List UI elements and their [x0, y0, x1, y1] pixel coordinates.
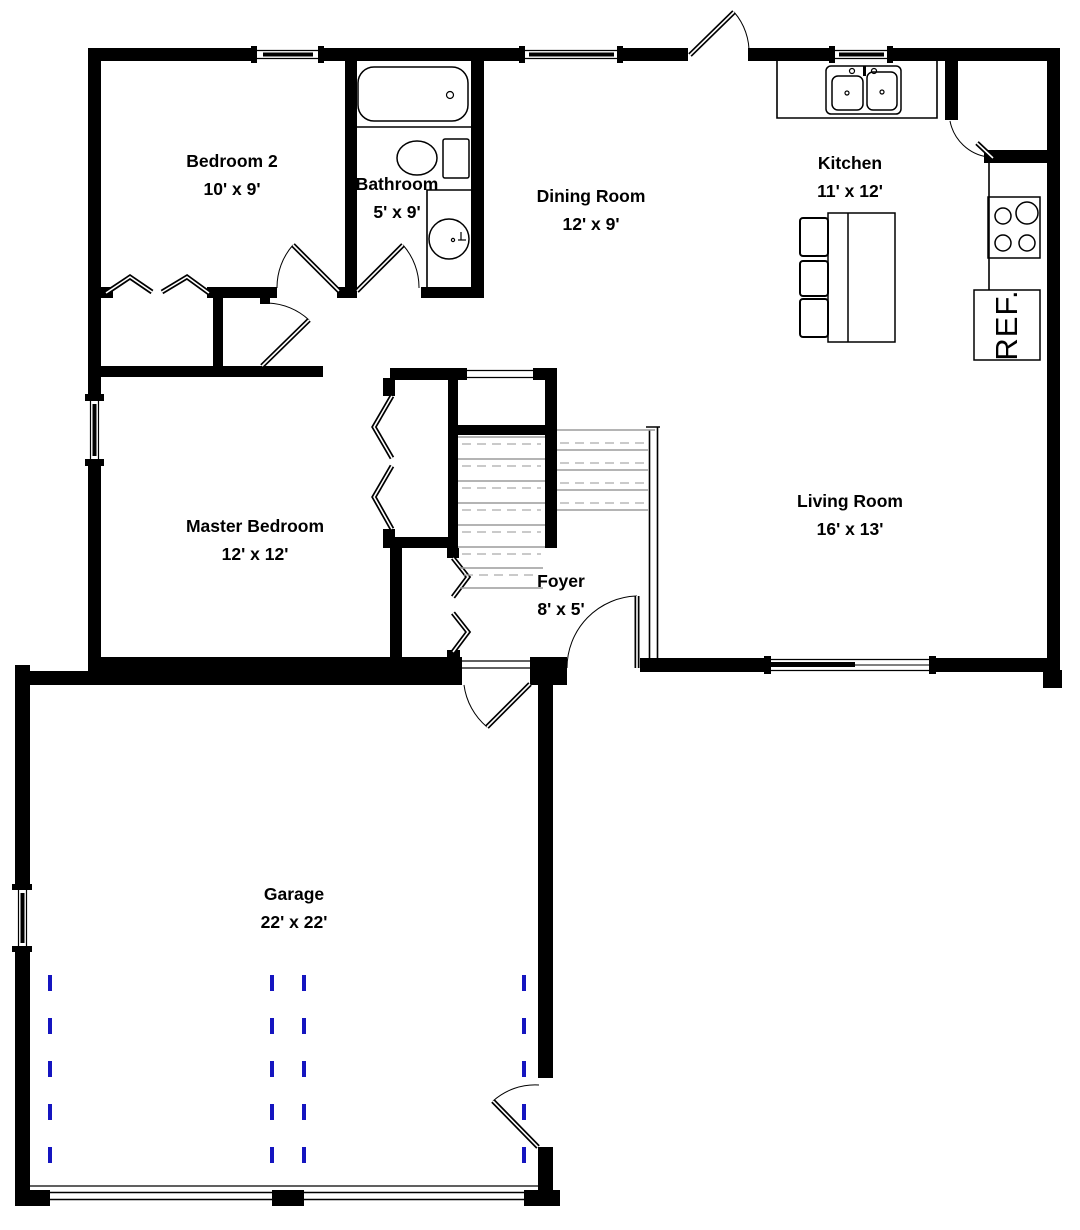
garage-side-door	[493, 1085, 539, 1147]
room-dims: 10' x 9'	[186, 175, 277, 203]
floor-plan: Bedroom 2 10' x 9' Bathroom 5' x 9' Dini…	[0, 0, 1080, 1230]
refrigerator-label: REF.	[989, 289, 1025, 360]
room-label-bathroom: Bathroom 5' x 9'	[356, 170, 439, 226]
bathroom-door	[357, 245, 419, 291]
room-name: Bathroom	[356, 170, 439, 198]
range-stove	[988, 197, 1040, 258]
room-dims: 5' x 9'	[356, 198, 439, 226]
garage-window	[19, 890, 27, 946]
master-closet-doors	[374, 396, 392, 529]
room-label-garage: Garage 22' x 22'	[261, 880, 328, 936]
room-name: Foyer	[537, 567, 585, 595]
back-door	[690, 12, 749, 55]
kitchen-sink	[826, 66, 901, 114]
foyer-closet-doors	[453, 558, 468, 652]
bedroom2-closet-doors	[106, 277, 209, 293]
master-bedroom-door	[262, 303, 309, 366]
room-name: Living Room	[797, 487, 903, 515]
foyer-east-wall	[646, 427, 660, 667]
room-name: Bedroom 2	[186, 147, 277, 175]
closet-sliding-door	[467, 371, 533, 378]
garage-entry-threshold	[462, 661, 530, 668]
room-label-living: Living Room 16' x 13'	[797, 487, 903, 543]
bedroom2-door	[277, 245, 339, 291]
bedroom2-window	[257, 51, 318, 59]
thin-lines	[30, 61, 989, 1200]
closet-bifold-doors	[106, 277, 468, 652]
bathtub	[358, 67, 468, 121]
island-stools	[800, 218, 828, 337]
room-dims: 8' x 5'	[537, 595, 585, 623]
basement-staircase	[557, 430, 655, 510]
room-dims: 12' x 9'	[537, 210, 646, 238]
room-label-master: Master Bedroom 12' x 12'	[186, 512, 324, 568]
main-staircase	[458, 437, 545, 588]
bathroom-fixtures	[358, 67, 469, 259]
room-name: Master Bedroom	[186, 512, 324, 540]
room-label-dining: Dining Room 12' x 9'	[537, 182, 646, 238]
room-label-foyer: Foyer 8' x 5'	[537, 567, 585, 623]
room-label-kitchen: Kitchen 11' x 12'	[817, 149, 883, 205]
room-dims: 12' x 12'	[186, 540, 324, 568]
patio-sliding-door	[771, 660, 929, 671]
pantry-door	[950, 121, 993, 158]
room-label-bedroom2: Bedroom 2 10' x 9'	[186, 147, 277, 203]
kitchen-island	[828, 213, 895, 342]
room-name: Garage	[261, 880, 328, 908]
master-bedroom-window	[91, 401, 99, 459]
garage-entry-door	[464, 684, 530, 727]
room-name: Kitchen	[817, 149, 883, 177]
garage-door-tracks	[50, 975, 524, 1188]
room-dims: 16' x 13'	[797, 515, 903, 543]
room-dims: 22' x 22'	[261, 908, 328, 936]
kitchen-window	[835, 51, 887, 59]
room-name: Dining Room	[537, 182, 646, 210]
dining-window	[525, 51, 617, 59]
room-dims: 11' x 12'	[817, 177, 883, 205]
